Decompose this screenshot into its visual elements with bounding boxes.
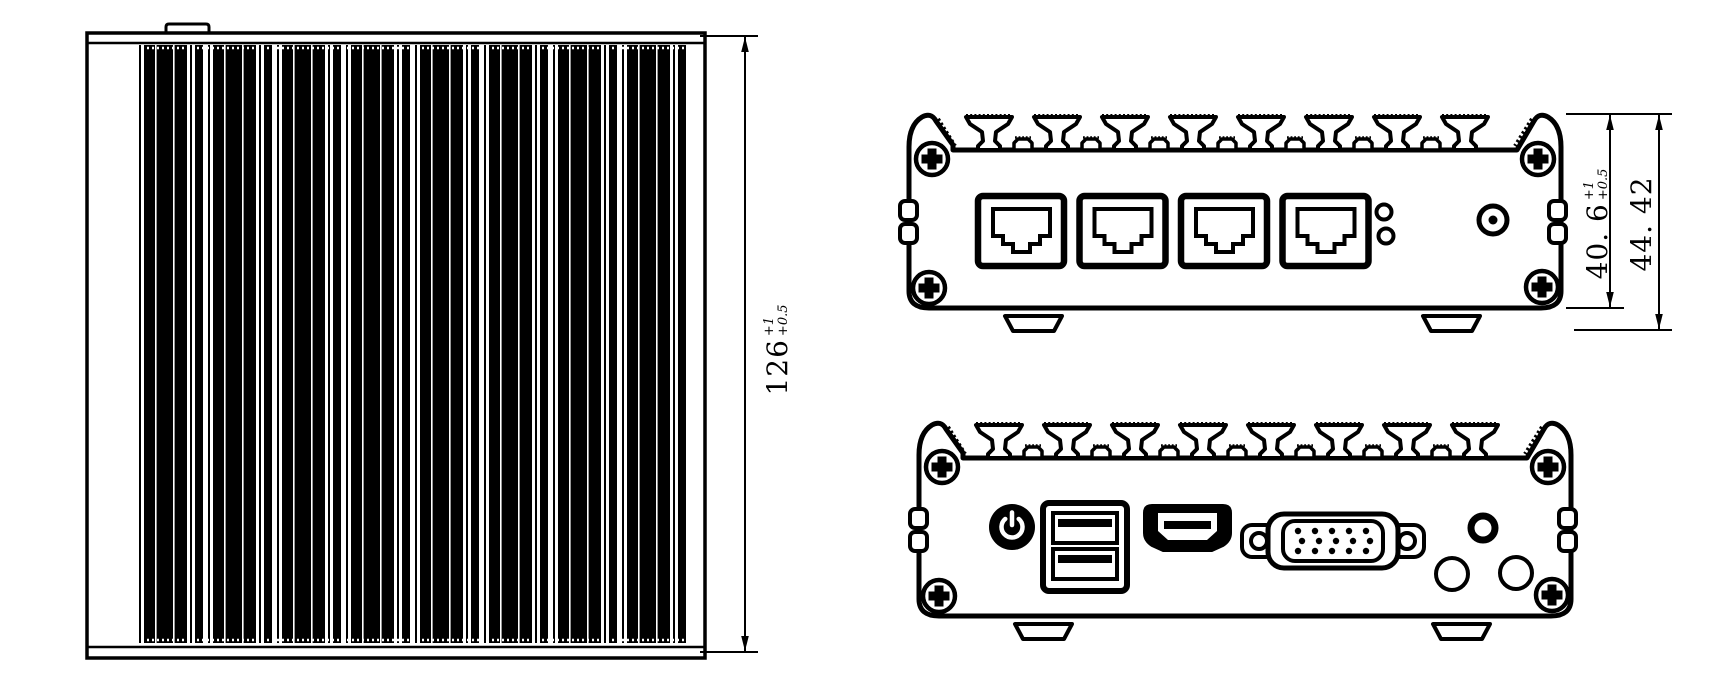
dimension-value: 126 — [761, 339, 794, 395]
vga-port — [1242, 514, 1424, 568]
usb-dual-port — [1043, 503, 1127, 591]
power-button — [989, 504, 1035, 550]
dimension-value: 44. 42 — [1625, 176, 1658, 271]
antenna-hole — [1500, 557, 1532, 589]
technical-drawing-canvas: 126 +1 +0.5 40. 6 +1 +0.5 44. 42 — [0, 0, 1729, 692]
dimension-value: 40. 6 — [1581, 203, 1614, 279]
rj45-port-3 — [1181, 196, 1267, 266]
led-indicator — [1379, 229, 1394, 244]
dimension-tolerance: +1 +0.5 — [763, 304, 790, 336]
drawing-svg — [0, 0, 1729, 692]
rj45-port-2 — [1080, 196, 1166, 266]
hdmi-port — [1144, 505, 1231, 551]
led-indicator — [1377, 205, 1392, 220]
dimension-left-height — [700, 36, 758, 652]
rj45-port-4 — [1283, 196, 1369, 266]
antenna-hole — [1436, 558, 1468, 590]
front-view — [900, 115, 1566, 331]
dimension-label-40-6: 40. 6 +1 +0.5 — [1576, 164, 1618, 284]
heatsink-fin-stripes — [137, 45, 689, 643]
dc-jack — [1479, 206, 1507, 234]
dimension-label-126: 126 +1 +0.5 — [754, 290, 800, 410]
dimension-tolerance: +1 +0.5 — [1583, 169, 1610, 201]
dimension-label-44-42: 44. 42 — [1624, 169, 1658, 279]
rj45-port-1 — [978, 196, 1064, 266]
audio-jack — [1471, 516, 1495, 540]
top-view-heatsink — [87, 24, 705, 658]
rear-view — [910, 423, 1576, 639]
